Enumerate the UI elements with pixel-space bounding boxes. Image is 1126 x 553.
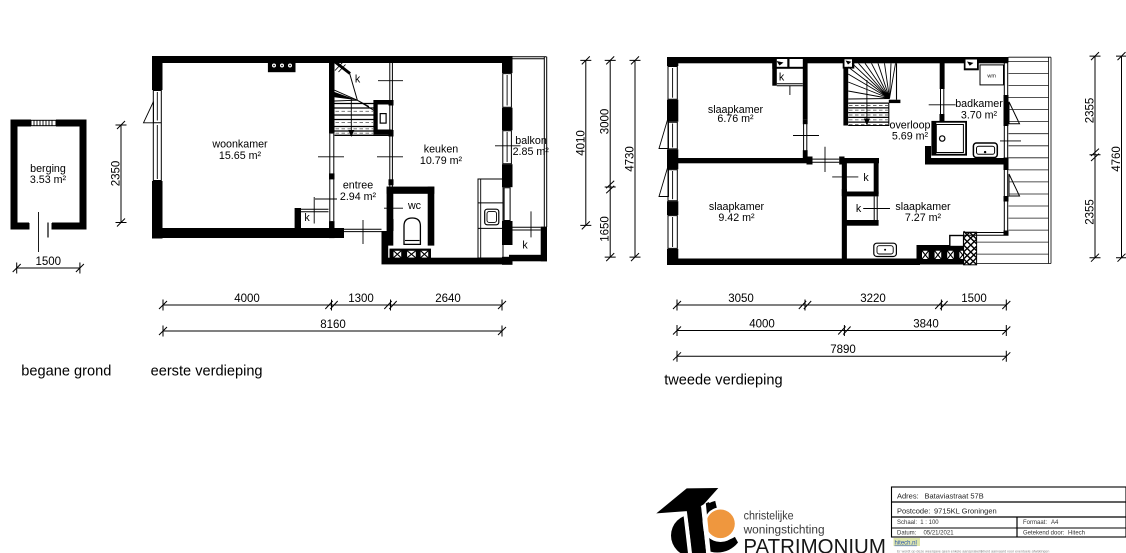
svg-text:3050: 3050 (728, 293, 754, 305)
svg-text:Adres:: Adres: (897, 492, 919, 501)
svg-text:wc: wc (407, 200, 422, 212)
svg-text:Er wordt op deze weergave geen: Er wordt op deze weergave geen enkele aa… (897, 550, 1049, 553)
svg-text:4000: 4000 (749, 318, 775, 330)
svg-text:Formaat:: Formaat: (1023, 520, 1047, 526)
svg-text:PATRIMONIUM: PATRIMONIUM (743, 535, 886, 553)
svg-text:badkamer: badkamer (955, 98, 1003, 110)
svg-text:2640: 2640 (435, 293, 461, 305)
svg-text:4000: 4000 (234, 293, 260, 305)
svg-text:berging: berging (30, 163, 66, 175)
svg-text:slaapkamer: slaapkamer (709, 201, 765, 213)
svg-text:entree: entree (343, 180, 373, 192)
svg-text:tweede verdieping: tweede verdieping (664, 373, 782, 389)
svg-text:4760: 4760 (1111, 146, 1123, 172)
svg-text:k: k (856, 203, 862, 215)
svg-text:k: k (355, 74, 361, 86)
svg-text:15.65 m²: 15.65 m² (219, 150, 262, 162)
svg-text:5.69 m²: 5.69 m² (892, 131, 929, 143)
svg-text:slaapkamer: slaapkamer (895, 201, 951, 213)
svg-text:A4: A4 (1051, 520, 1059, 526)
svg-text:1500: 1500 (36, 256, 62, 268)
svg-text:christelijke: christelijke (744, 511, 794, 523)
svg-text:3220: 3220 (860, 293, 886, 305)
svg-text:2355: 2355 (1085, 199, 1097, 225)
svg-text:3840: 3840 (913, 318, 939, 330)
svg-text:1300: 1300 (348, 293, 374, 305)
svg-text:9715KL Groningen: 9715KL Groningen (934, 507, 997, 516)
svg-text:2355: 2355 (1085, 98, 1097, 124)
svg-text:Schaal:: Schaal: (897, 520, 917, 526)
svg-text:k: k (522, 240, 528, 252)
svg-text:Hitech: Hitech (1068, 530, 1085, 536)
svg-text:4010: 4010 (575, 130, 587, 156)
svg-text:balkon: balkon (515, 135, 547, 147)
svg-text:begane grond: begane grond (21, 364, 111, 380)
svg-text:6.76 m²: 6.76 m² (717, 113, 754, 125)
svg-text:1500: 1500 (961, 293, 987, 305)
svg-text:4730: 4730 (625, 146, 637, 172)
svg-text:Getekend door:: Getekend door: (1023, 530, 1065, 536)
svg-text:Bataviastraat 57B: Bataviastraat 57B (925, 492, 984, 501)
svg-text:3.70 m²: 3.70 m² (961, 110, 998, 122)
svg-text:05/21/2021: 05/21/2021 (924, 530, 955, 536)
svg-text:Datum:: Datum: (897, 530, 917, 536)
svg-text:1 : 100: 1 : 100 (920, 520, 939, 526)
svg-text:keuken: keuken (424, 144, 459, 156)
svg-text:Postcode:: Postcode: (897, 507, 930, 516)
svg-text:eerste verdieping: eerste verdieping (151, 364, 263, 380)
svg-text:2.85 m²: 2.85 m² (513, 146, 550, 158)
svg-text:3.53 m²: 3.53 m² (30, 174, 67, 186)
svg-text:2350: 2350 (111, 161, 123, 187)
svg-text:k: k (863, 172, 869, 184)
svg-text:woonkamer: woonkamer (211, 139, 268, 151)
svg-text:10.79 m²: 10.79 m² (420, 155, 463, 167)
svg-text:1650: 1650 (600, 216, 612, 242)
svg-text:9.42 m²: 9.42 m² (718, 212, 755, 224)
svg-text:7890: 7890 (830, 344, 856, 356)
svg-text:wm: wm (986, 74, 996, 80)
svg-text:3000: 3000 (600, 109, 612, 135)
svg-text:2.94 m²: 2.94 m² (340, 191, 377, 203)
svg-text:hitech.nl: hitech.nl (895, 541, 917, 547)
svg-text:7.27 m²: 7.27 m² (905, 212, 942, 224)
svg-text:8160: 8160 (320, 319, 346, 331)
svg-text:k: k (779, 72, 785, 84)
svg-text:k: k (304, 212, 310, 224)
